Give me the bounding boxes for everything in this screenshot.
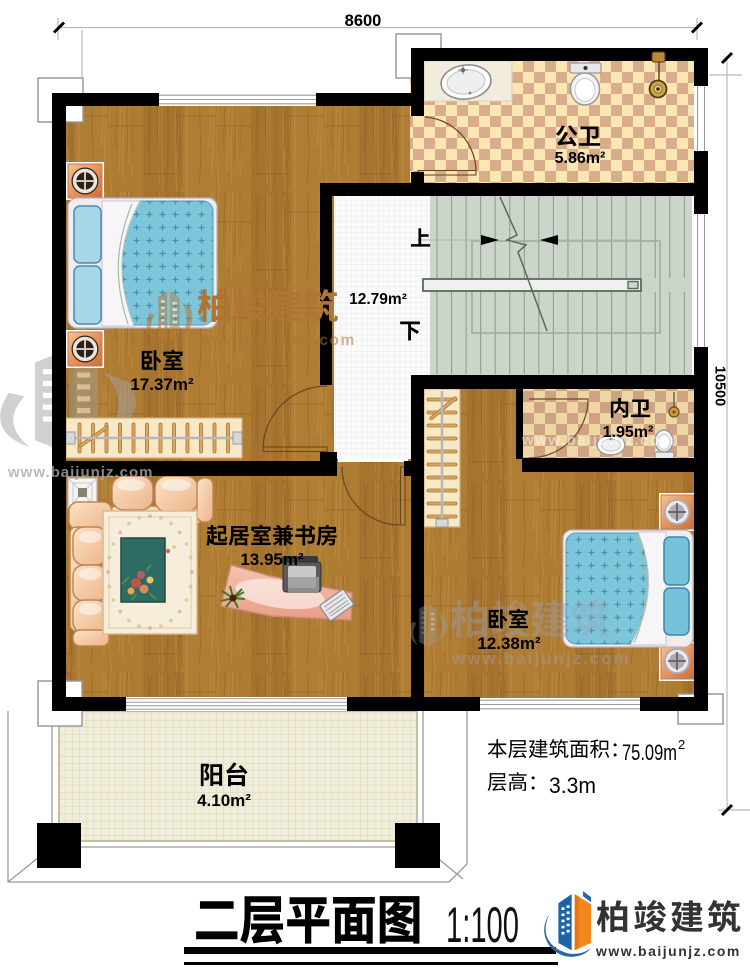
svg-text:17.37m²: 17.37m²: [130, 375, 194, 394]
svg-text:2: 2: [678, 737, 685, 752]
svg-text:12.79m²: 12.79m²: [349, 291, 407, 308]
svg-text:4.10m²: 4.10m²: [197, 791, 251, 810]
svg-text:12.38m²: 12.38m²: [477, 634, 541, 653]
svg-text:www.baijunjz.com: www.baijunjz.com: [7, 464, 153, 481]
svg-text:5.86m²: 5.86m²: [555, 150, 606, 167]
svg-text:75.09m: 75.09m: [622, 740, 677, 765]
svg-text:3.3m: 3.3m: [549, 773, 596, 798]
svg-text:www.baijunjz.com: www.baijunjz.com: [197, 332, 356, 349]
svg-text:1.95m²: 1.95m²: [603, 424, 654, 441]
svg-text:13.95m²: 13.95m²: [240, 550, 304, 569]
svg-text:8600: 8600: [345, 12, 382, 30]
svg-text:1:100: 1:100: [446, 897, 519, 953]
svg-text:www.baijunjz.com: www.baijunjz.com: [595, 943, 741, 959]
svg-text:10500: 10500: [712, 366, 728, 406]
